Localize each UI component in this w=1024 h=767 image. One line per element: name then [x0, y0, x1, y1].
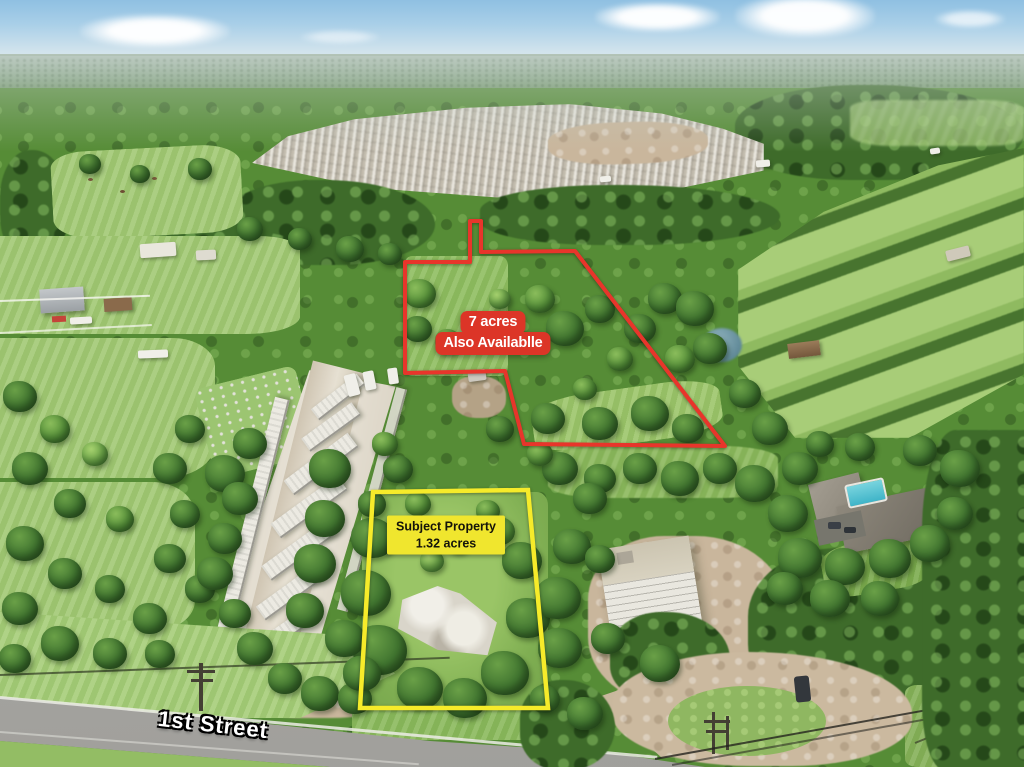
- tree-canopy: [869, 539, 911, 578]
- tree-canopy: [661, 461, 699, 496]
- tree-canopy: [378, 243, 402, 265]
- tree-canopy: [729, 379, 761, 408]
- tree-canopy: [404, 316, 432, 342]
- tree-canopy: [525, 285, 555, 313]
- tree-canopy: [341, 570, 391, 616]
- tree-canopy: [233, 428, 267, 459]
- tree-canopy: [910, 525, 950, 562]
- tree-canopy: [268, 663, 302, 694]
- tree-canopy: [782, 452, 818, 485]
- tree-canopy: [531, 403, 565, 434]
- tree-canopy: [940, 450, 980, 487]
- tree-canopy: [624, 314, 656, 343]
- tree-canopy: [219, 599, 251, 628]
- tree-canopy: [288, 228, 312, 250]
- tree-canopy: [41, 626, 79, 661]
- tree-canopy: [404, 279, 436, 308]
- tree-canopy: [693, 333, 727, 364]
- tree-canopy: [806, 431, 834, 457]
- tree-canopy: [12, 452, 48, 485]
- tree-canopy: [197, 557, 233, 590]
- tree-canopy: [582, 407, 618, 440]
- tree-canopy: [527, 442, 553, 466]
- tree-canopy: [735, 465, 775, 502]
- tree-canopy: [903, 435, 937, 466]
- tree-canopy: [752, 412, 788, 445]
- tree-canopy: [845, 433, 875, 461]
- tree-canopy: [40, 415, 70, 443]
- tree-canopy: [358, 491, 386, 517]
- tree-canopy: [130, 165, 150, 183]
- tree-canopy: [6, 526, 44, 561]
- tree-canopy: [154, 544, 186, 573]
- tree-canopy: [767, 572, 803, 605]
- tree-canopy: [237, 217, 263, 241]
- tree-canopy: [170, 500, 200, 528]
- tree-canopy: [703, 453, 737, 484]
- tree-canopy: [372, 432, 398, 456]
- tree-canopy: [397, 667, 443, 709]
- tree-canopy: [530, 685, 560, 713]
- tree-canopy: [95, 575, 125, 603]
- tree-canopy: [631, 396, 669, 431]
- tree-canopy: [405, 492, 431, 516]
- subject-label-line2: 1.32 acres: [396, 535, 496, 552]
- tree-canopy: [585, 295, 615, 323]
- tree-canopy: [82, 442, 108, 466]
- subject-label-line1: Subject Property: [396, 519, 496, 536]
- tree-canopy: [768, 495, 808, 532]
- subject-label: Subject Property 1.32 acres: [387, 516, 505, 555]
- tree-canopy: [585, 545, 615, 573]
- tree-canopy: [343, 656, 381, 691]
- tree-canopy: [567, 697, 603, 730]
- tree-canopy: [222, 482, 258, 515]
- tree-canopy: [546, 311, 584, 346]
- tree-canopy: [573, 483, 607, 514]
- tree-canopy: [676, 291, 714, 326]
- tree-canopy: [810, 580, 850, 617]
- tree-canopy: [486, 416, 514, 442]
- tree-canopy: [861, 581, 899, 616]
- tree-canopy: [106, 506, 134, 532]
- tree-canopy: [286, 593, 324, 628]
- parcel-label: 7 acres Also Availablle: [435, 311, 550, 355]
- tree-canopy: [133, 603, 167, 634]
- tree-canopy: [208, 523, 242, 554]
- tree-canopy: [538, 628, 582, 668]
- tree-canopy: [301, 676, 339, 711]
- tree-canopy: [237, 632, 273, 665]
- tree-canopy: [443, 678, 487, 718]
- tree-canopy: [502, 542, 542, 579]
- tree-canopy: [665, 345, 695, 373]
- tree-canopy: [640, 645, 680, 682]
- tree-canopy: [383, 455, 413, 483]
- tree-canopy: [0, 644, 31, 673]
- tree-canopy: [294, 544, 336, 583]
- tree-canopy: [3, 381, 37, 412]
- tree-canopy: [573, 378, 597, 400]
- parcel-label-line2: Also Availablle: [435, 332, 550, 355]
- tree-canopy: [175, 415, 205, 443]
- tree-canopy: [607, 347, 633, 371]
- tree-canopy: [309, 449, 351, 488]
- tree-canopy: [489, 289, 511, 309]
- tree-canopy: [623, 453, 657, 484]
- tree-canopy: [481, 651, 529, 695]
- tree-canopy: [937, 497, 973, 530]
- aerial-photo: 7 acres Also Availablle Subject Property…: [0, 0, 1024, 767]
- tree-canopy: [535, 577, 581, 619]
- tree-canopy: [48, 558, 82, 589]
- tree-canopy: [591, 623, 625, 654]
- tree-canopy: [79, 154, 101, 174]
- tree-canopy: [336, 236, 364, 262]
- tree-canopy: [325, 620, 365, 657]
- tree-canopy: [188, 158, 212, 180]
- tree-canopy: [305, 500, 345, 537]
- tree-canopy: [93, 638, 127, 669]
- tree-canopy: [2, 592, 38, 625]
- tree-canopy: [672, 414, 704, 443]
- tree-canopy: [145, 640, 175, 668]
- tree-canopy: [54, 489, 86, 518]
- tree-canopy: [153, 453, 187, 484]
- trees-layer: [0, 0, 1024, 767]
- parcel-label-line1: 7 acres: [461, 311, 526, 334]
